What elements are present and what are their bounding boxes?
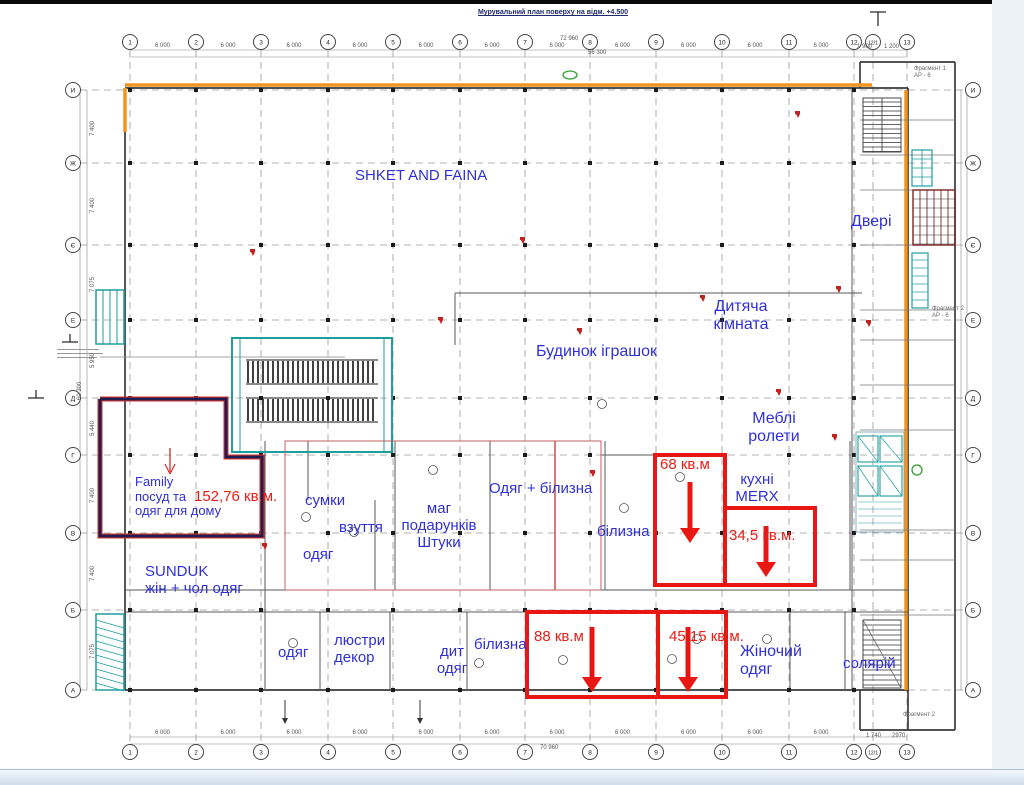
exit-arrow-head	[417, 718, 423, 724]
window-side-strip	[992, 0, 1024, 785]
stair-hatch	[96, 662, 124, 670]
axis-bubble-top-label: 7	[523, 39, 527, 46]
level-mark-red	[866, 320, 871, 323]
stair-hatch	[96, 648, 124, 656]
axis-bubble-right-label: Е	[971, 317, 976, 324]
dimension-text: 1 740	[866, 733, 881, 739]
dimension-bay-bottom: 6 000	[485, 730, 500, 736]
column-marker	[852, 453, 856, 457]
dimension-bay-bottom: 6 000	[615, 730, 630, 736]
axis-bubble-top-label: 2	[194, 39, 198, 46]
dimension-bay-bottom: 6 000	[419, 730, 434, 736]
column-marker	[588, 531, 592, 535]
column-marker	[654, 161, 658, 165]
column-marker	[458, 396, 462, 400]
axis-bubble-right-label: А	[971, 687, 976, 694]
column-marker	[326, 608, 330, 612]
column-marker	[128, 688, 132, 692]
dimension-top-sub: 56 300	[588, 50, 606, 56]
column-marker	[852, 396, 856, 400]
level-mark-red	[795, 111, 800, 114]
drawing-title: Мурувальний план поверху на відм. +4.500	[438, 9, 668, 16]
shop-label-sumky: сумки	[305, 493, 345, 510]
level-mark-red	[833, 437, 837, 441]
column-marker	[654, 88, 658, 92]
wc-cabin	[880, 436, 902, 462]
area-label-area-68: 68 кв.м	[660, 457, 710, 474]
shop-label-budynok-igrashok: Будинок іграшок	[536, 343, 657, 361]
shop-label-sunduk: SUNDUKжін + чол одяг	[145, 564, 243, 598]
dimension-bay-left: 7 400	[90, 198, 96, 213]
level-mark-red	[837, 289, 841, 293]
axis-bubble-bottom-label: 7	[523, 749, 527, 756]
dimension-bay-bottom: 6 000	[814, 730, 829, 736]
column-marker	[128, 318, 132, 322]
level-mark-red	[796, 114, 800, 118]
column-marker	[326, 453, 330, 457]
column-marker	[720, 243, 724, 247]
column-marker	[523, 453, 527, 457]
tiny-note-line	[57, 349, 99, 350]
dimension-bay-left: 7 400	[90, 120, 96, 135]
level-mark-red	[439, 320, 443, 324]
axis-bubble-left-label: Б	[71, 607, 75, 614]
axis-bubble-bottom-label: 10	[718, 749, 726, 756]
column-marker	[194, 453, 198, 457]
axis-bubble-top-label: 11	[786, 39, 793, 46]
shop-label-odyag-left: одяг	[303, 547, 333, 564]
column-marker	[588, 453, 592, 457]
column-marker	[326, 243, 330, 247]
axis-bubble-right-label: Д	[971, 395, 976, 402]
column-marker	[391, 88, 395, 92]
axis-bubble-top-label: 5	[391, 39, 395, 46]
column-marker	[326, 688, 330, 692]
axis-bubble-top-label: 6	[458, 39, 462, 46]
shop-label-odyag-bottom: одяг	[278, 645, 308, 662]
column-marker	[194, 318, 198, 322]
fragment-label-fragment-2: Фрагмент 2АР - 6	[932, 306, 964, 319]
room-tag-circle	[559, 656, 568, 665]
level-mark-red	[777, 392, 781, 396]
dimension-bay-top: 6 000	[681, 43, 696, 49]
axis-bubble-bottom-label: 12/1	[868, 750, 878, 756]
column-marker	[787, 608, 791, 612]
window-bottom-bar	[0, 769, 1024, 785]
axis-bubble-bottom-label: 2	[194, 749, 198, 756]
dimension-bay-left: 7 075	[90, 276, 96, 291]
column-marker	[787, 161, 791, 165]
axis-bubble-top-label: 10	[718, 39, 726, 46]
cad-viewer-screenshot: 11223344556677889910101111121212/112/113…	[0, 0, 1024, 785]
column-marker	[458, 688, 462, 692]
axis-bubble-left-label: И	[71, 87, 76, 94]
axis-bubble-right-label: Г	[971, 452, 975, 459]
green-mark	[563, 71, 577, 79]
column-marker	[654, 396, 658, 400]
axis-bubble-bottom-label: 13	[903, 749, 911, 756]
axis-bubble-bottom-label: 3	[259, 749, 263, 756]
axis-bubble-left-label: Ж	[70, 160, 76, 167]
axis-bubble-right-label: И	[971, 87, 976, 94]
column-marker	[259, 88, 263, 92]
column-marker	[194, 608, 198, 612]
dimension-bay-top: 6 000	[287, 43, 302, 49]
axis-bubble-left-label: Е	[71, 317, 76, 324]
dimension-bay-left: 5 440	[90, 420, 96, 435]
red-pointer-arrow	[170, 464, 175, 474]
column-marker	[458, 318, 462, 322]
shop-label-mag-podarunkiv: магподарунківШтуки	[383, 501, 495, 551]
axis-bubble-bottom-label: 11	[786, 749, 793, 756]
exit-arrow-head	[282, 718, 288, 724]
column-marker	[391, 161, 395, 165]
axis-bubble-bottom-label: 4	[326, 749, 330, 756]
column-marker	[128, 608, 132, 612]
dimension-bay-bottom: 6 000	[221, 730, 236, 736]
level-mark-red	[832, 434, 837, 437]
shop-label-dytiacha-kimnata: Дитячакімната	[695, 298, 787, 334]
column-marker	[259, 243, 263, 247]
level-mark-red	[578, 331, 582, 335]
room-tag-circle	[598, 400, 607, 409]
column-marker	[458, 88, 462, 92]
axis-bubble-bottom-label: 5	[391, 749, 395, 756]
column-marker	[259, 608, 263, 612]
column-marker	[391, 608, 395, 612]
level-mark-red	[251, 252, 255, 256]
room-tag-circle	[429, 466, 438, 475]
column-marker	[194, 161, 198, 165]
axis-bubble-left-label: Є	[71, 242, 76, 249]
column-marker	[259, 161, 263, 165]
shop-label-vzuttia: взуття	[339, 520, 383, 537]
axis-bubble-top-label: 4	[326, 39, 330, 46]
column-marker	[458, 608, 462, 612]
stair-hatch	[96, 641, 124, 649]
level-mark-red	[591, 473, 595, 477]
area-label-area-345: 34,5 кв.м.	[729, 528, 796, 545]
window-top-edge	[0, 0, 992, 4]
column-marker	[588, 243, 592, 247]
column-marker	[326, 88, 330, 92]
axis-bubble-bottom-label: 6	[458, 749, 462, 756]
column-marker	[326, 531, 330, 535]
column-marker	[654, 318, 658, 322]
axis-bubble-right-label: В	[971, 530, 975, 537]
dimension-bay-bottom: 6 000	[287, 730, 302, 736]
column-marker	[720, 396, 724, 400]
shop-label-mebli-rolety: Мебліролети	[742, 410, 806, 446]
dimension-text: 1 900	[857, 44, 872, 50]
room-tag-circle	[620, 504, 629, 513]
escalator-outline	[232, 338, 392, 452]
shop-label-bilyzna-mid: білизна	[597, 524, 650, 541]
shop-label-bilyzna-bottom: білизна	[474, 637, 527, 654]
dimension-text: 1 200	[884, 44, 899, 50]
axis-bubble-left-label: Г	[71, 452, 75, 459]
column-marker	[588, 396, 592, 400]
level-mark-red	[250, 249, 255, 252]
column-marker	[787, 318, 791, 322]
level-mark-red	[263, 546, 267, 550]
column-marker	[194, 88, 198, 92]
level-mark-red	[836, 286, 841, 289]
dimension-bay-bottom: 6 000	[550, 730, 565, 736]
red-down-arrow-head	[756, 562, 776, 577]
column-marker	[852, 608, 856, 612]
axis-bubble-top-label: 9	[654, 39, 658, 46]
column-marker	[259, 318, 263, 322]
column-marker	[720, 88, 724, 92]
column-marker	[326, 318, 330, 322]
column-marker	[787, 243, 791, 247]
axis-bubble-bottom-label: 1	[128, 749, 132, 756]
axis-bubble-right-label: Є	[971, 242, 976, 249]
dimension-bay-top: 6 000	[155, 43, 170, 49]
dimension-bay-top: 6 000	[353, 43, 368, 49]
column-marker	[194, 688, 198, 692]
dimension-bay-left: 7 075	[90, 644, 96, 659]
axis-bubble-right-label: Б	[971, 607, 975, 614]
column-marker	[720, 161, 724, 165]
column-marker	[391, 688, 395, 692]
area-label-area-88: 88 кв.м	[534, 629, 584, 646]
axis-bubble-bottom-label: 8	[588, 749, 592, 756]
wc-cabin	[880, 466, 902, 496]
highlight-area-box	[725, 508, 815, 585]
axis-bubble-right-label: Ж	[970, 160, 976, 167]
level-mark-red	[577, 328, 582, 331]
fragment-label-fragment-3: Фрагмент 2	[903, 712, 935, 719]
dimension-top-total: 72 960	[560, 36, 578, 42]
stair-hatch	[96, 676, 124, 684]
dimension-bay-top: 6 000	[485, 43, 500, 49]
axis-bubble-left-label: А	[71, 687, 76, 694]
shop-label-odyag-bilyzna: Одяг + білизна	[489, 481, 592, 498]
stair-hatch	[96, 655, 124, 663]
axis-bubble-left-label: В	[71, 530, 75, 537]
column-marker	[852, 531, 856, 535]
wc-cabin	[858, 466, 878, 496]
column-marker	[588, 318, 592, 322]
area-label-area-152: 152,76 кв.м.	[194, 489, 277, 506]
dimension-bay-top: 6 000	[550, 43, 565, 49]
dimension-bay-bottom: 6 000	[353, 730, 368, 736]
red-down-arrow-head	[680, 528, 700, 543]
axis-bubble-top-label: 13	[903, 39, 911, 46]
shop-label-shket: SHKET AND FAINA	[355, 168, 487, 185]
column-marker	[523, 243, 527, 247]
level-mark-red	[262, 543, 267, 546]
column-marker	[852, 88, 856, 92]
dimension-left-total: 60 300	[77, 382, 83, 400]
shop-label-zhinochyi-odyag: Жіночийодяг	[740, 643, 802, 679]
room-tag-circle	[302, 513, 311, 522]
column-marker	[852, 161, 856, 165]
column-marker	[194, 243, 198, 247]
dimension-bay-top: 6 000	[748, 43, 763, 49]
column-marker	[458, 243, 462, 247]
column-marker	[259, 688, 263, 692]
dimension-bay-bottom: 6 000	[748, 730, 763, 736]
column-marker	[326, 161, 330, 165]
column-marker	[720, 688, 724, 692]
column-marker	[852, 243, 856, 247]
dimension-text: 2970	[892, 733, 905, 739]
column-marker	[523, 161, 527, 165]
axis-bubble-bottom-label: 12	[850, 749, 858, 756]
stair-hatch	[96, 620, 124, 628]
room-tag-circle	[676, 473, 685, 482]
dimension-bay-left: 7 400	[90, 565, 96, 580]
axis-bubble-top-label: 1	[128, 39, 132, 46]
level-mark-red	[776, 389, 781, 392]
column-marker	[523, 531, 527, 535]
column-marker	[458, 161, 462, 165]
level-mark-red	[590, 470, 595, 473]
column-marker	[458, 453, 462, 457]
room-tag-circle	[668, 655, 677, 664]
column-marker	[391, 453, 395, 457]
dimension-bay-bottom: 6 000	[681, 730, 696, 736]
axis-bubble-left-label: Д	[71, 395, 76, 402]
shop-label-dveri: Двері	[851, 213, 892, 231]
axis-bubble-top-label: 8	[588, 39, 592, 46]
stair-hatch	[96, 627, 124, 635]
level-mark-red	[867, 323, 871, 327]
shop-label-liustry-dekor: люстридекор	[334, 633, 385, 667]
stair-hatch	[96, 634, 124, 642]
red-pointer-arrow	[165, 464, 170, 474]
dimension-bay-top: 6 000	[419, 43, 434, 49]
column-marker	[128, 453, 132, 457]
wc-cabin	[858, 436, 878, 462]
column-marker	[852, 688, 856, 692]
column-marker	[523, 396, 527, 400]
dimension-bay-bottom: 6 000	[155, 730, 170, 736]
column-marker	[588, 88, 592, 92]
dimension-bottom-total: 70 960	[540, 745, 558, 751]
column-marker	[588, 161, 592, 165]
column-marker	[128, 88, 132, 92]
axis-bubble-bottom-label: 9	[654, 749, 658, 756]
column-marker	[391, 318, 395, 322]
level-mark-red	[438, 317, 443, 320]
column-marker	[852, 318, 856, 322]
dimension-bay-left: 7 400	[90, 488, 96, 503]
column-marker	[787, 453, 791, 457]
level-mark-red	[520, 237, 525, 240]
area-label-area-4515: 45,15 кв.м.	[669, 629, 744, 646]
fragment-label-fragment-1: Фрагмент 1АР - 6	[914, 66, 946, 79]
column-marker	[523, 88, 527, 92]
dimension-bay-top: 6 000	[221, 43, 236, 49]
column-marker	[654, 243, 658, 247]
column-marker	[787, 88, 791, 92]
stair-hatch	[96, 669, 124, 677]
column-marker	[787, 396, 791, 400]
axis-bubble-top-label: 3	[259, 39, 263, 46]
tiny-note-line	[57, 353, 103, 354]
dimension-bay-top: 6 000	[615, 43, 630, 49]
column-marker	[787, 688, 791, 692]
dimension-bay-left: 5 950	[90, 353, 96, 368]
shop-label-solarii: солярій	[843, 656, 896, 673]
column-marker	[128, 243, 132, 247]
column-marker	[391, 243, 395, 247]
column-marker	[128, 161, 132, 165]
column-marker	[523, 318, 527, 322]
green-mark	[912, 465, 922, 475]
shop-label-kuhni-merx: кухніMERX	[726, 472, 788, 506]
dimension-bay-top: 6 000	[814, 43, 829, 49]
